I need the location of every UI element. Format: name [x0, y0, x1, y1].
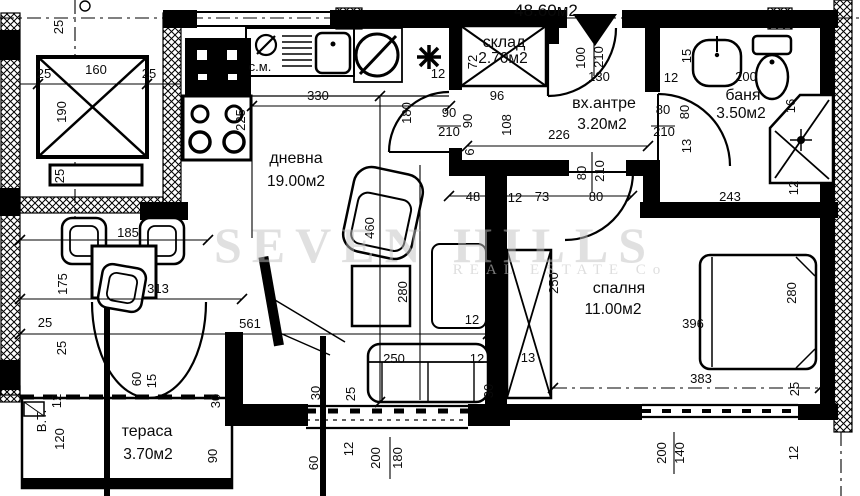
dimension-label: 13: [521, 350, 535, 365]
room-area-hall: 3.20м2: [577, 116, 626, 133]
dimension-label: 330: [307, 88, 329, 103]
dimension-label: 210: [591, 46, 606, 68]
dimension-label: 13: [679, 139, 694, 153]
dimension-label: 80: [677, 105, 692, 119]
room-area-bath: 3.50м2: [716, 105, 765, 122]
dimension-label: 175: [55, 273, 70, 295]
dimension-label: 120: [52, 428, 67, 450]
dimension-label: 396: [682, 316, 704, 331]
dimension-label: 30: [481, 384, 496, 398]
dimension-label: 280: [395, 281, 410, 303]
dimension-label: 96: [490, 88, 504, 103]
dimension-label: 90: [442, 105, 456, 120]
dimension-label: 12: [470, 351, 484, 366]
total-area-label: 48.60м2: [514, 1, 578, 20]
dimension-label: 190: [54, 101, 69, 123]
dining-chair: [97, 263, 148, 314]
dimension-label: 280: [784, 282, 799, 304]
dimension-label: 226: [548, 127, 570, 142]
dimension-label: 25: [38, 315, 52, 330]
dimension-label: 210: [438, 124, 460, 139]
dimension-label: 200: [735, 69, 757, 84]
dimension-label: 12: [465, 312, 479, 327]
dimension-label: 25: [54, 341, 69, 355]
dimension-label: 80: [589, 189, 603, 204]
room-area-storage: 2.70м2: [478, 50, 527, 67]
sink-basin: [316, 33, 350, 73]
room-name-bedroom: спалня: [593, 280, 645, 297]
dimension-label: 25: [52, 169, 67, 183]
dimension-label: 15: [144, 374, 159, 388]
dimension-label: 160: [85, 62, 107, 77]
dimension-label: 243: [719, 189, 741, 204]
dimension-label: 210: [653, 124, 675, 139]
watermark: SEVEN HILLS REAL ESTATE Co: [214, 217, 667, 278]
bed: [700, 255, 816, 369]
dimension-label: 25: [51, 20, 66, 34]
wash-basin: [693, 36, 741, 86]
dimension-label: 108: [499, 114, 514, 136]
dimension-label: 250: [383, 351, 405, 366]
dimension-label: 60: [129, 372, 144, 386]
dimension-label: 140: [672, 442, 687, 464]
dimension-label: 25: [343, 387, 358, 401]
dimension-label: 25: [142, 66, 156, 81]
dimension-label: 225: [233, 109, 248, 131]
dimension-label: 100: [573, 47, 588, 69]
dimension-label: 80: [574, 166, 589, 180]
dimension-label: 130: [588, 69, 610, 84]
dimension-label: 12: [49, 394, 64, 408]
dimension-label: 73: [535, 189, 549, 204]
room-area-terrace: 3.70м2: [123, 446, 172, 463]
room-name-living: дневна: [269, 150, 322, 167]
dimension-label: В.Т.: [34, 410, 49, 432]
dimension-label: 30: [208, 394, 223, 408]
dimension-label: 48: [466, 189, 480, 204]
dimension-label: 6: [462, 148, 477, 155]
dimension-label: 313: [147, 281, 169, 296]
dimension-label: 185: [117, 225, 139, 240]
watermark-subtitle: REAL ESTATE Co: [453, 262, 668, 278]
dimension-label: 210: [592, 160, 607, 182]
room-name-terrace: тераса: [122, 423, 173, 440]
dimension-label: 90: [205, 449, 220, 463]
dimension-label: 80: [656, 102, 670, 117]
dimension-label: 25: [37, 66, 51, 81]
dimension-label: 12: [664, 70, 678, 85]
dimension-label: 200: [654, 442, 669, 464]
dimension-label: 12: [786, 181, 801, 195]
dimension-label: 60: [306, 456, 321, 470]
dimension-label: 30: [308, 386, 323, 400]
room-area-bedroom: 11.00м2: [585, 301, 642, 318]
dimension-label: 12: [341, 442, 356, 456]
dimension-label: 561: [239, 316, 261, 331]
floor-plan: дневна 19.00м2 вх.антре 3.20м2 баня 3.50…: [0, 0, 860, 496]
dimension-label: 25: [787, 382, 802, 396]
dimension-label: 12: [508, 190, 522, 205]
dimension-label: 15: [679, 49, 694, 63]
dimension-label: 180: [399, 102, 414, 124]
room-area-living: 19.00м2: [267, 173, 325, 190]
room-name-bath: баня: [725, 87, 760, 104]
dimension-label: 200: [368, 447, 383, 469]
dimension-label: 383: [690, 371, 712, 386]
fridge: [185, 38, 251, 96]
dimension-label: 12: [786, 446, 801, 460]
dimension-label: 12: [431, 66, 445, 81]
dimension-label: 16: [783, 99, 798, 113]
room-name-hall: вх.антре: [572, 95, 636, 112]
dimension-label: 90: [460, 114, 475, 128]
dimension-label: 72: [465, 55, 480, 69]
dimension-label: с.м.: [249, 59, 272, 74]
room-name-storage: склад: [483, 34, 526, 51]
dimension-label: 180: [390, 447, 405, 469]
